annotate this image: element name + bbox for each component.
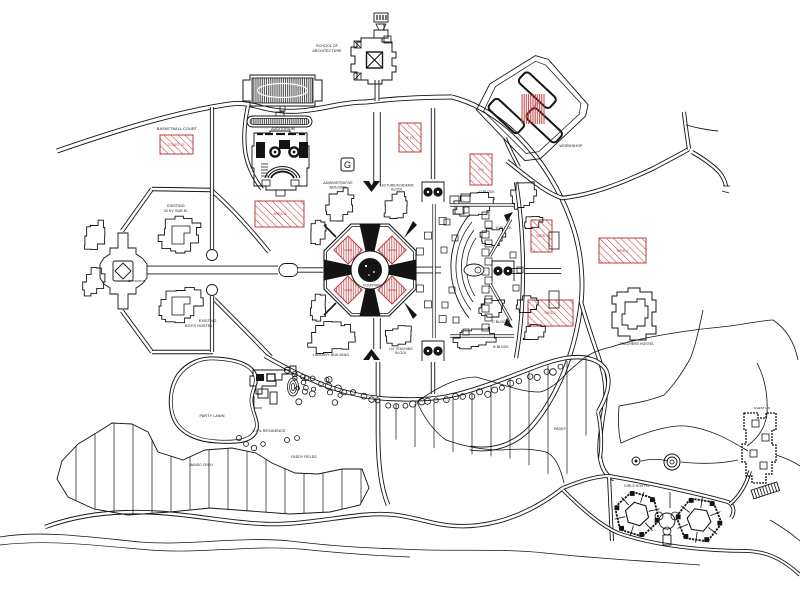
svg-text:YARD 2: YARD 2	[544, 311, 556, 315]
svg-text:WORKSHOP: WORKSHOP	[559, 144, 583, 148]
svg-text:LAWN: LAWN	[344, 288, 353, 292]
svg-text:GIRLS HOSTEL: GIRLS HOSTEL	[624, 484, 650, 488]
svg-text:BLOCK: BLOCK	[395, 351, 407, 355]
svg-text:V.C's RESIDENCE: V.C's RESIDENCE	[252, 429, 286, 433]
svg-text:COURT 12: COURT 12	[168, 143, 185, 147]
svg-text:PADDY: PADDY	[554, 427, 567, 431]
svg-text:LAWN: LAWN	[388, 248, 397, 252]
svg-text:C BLOCK: C BLOCK	[492, 320, 508, 324]
svg-text:SCHOOL OF: SCHOOL OF	[316, 44, 339, 48]
svg-text:LIBRARY BUILDING: LIBRARY BUILDING	[313, 353, 350, 357]
svg-text:AREA 11: AREA 11	[273, 212, 287, 216]
svg-text:YARD 4: YARD 4	[536, 234, 548, 238]
svg-text:BLOCK: BLOCK	[391, 188, 403, 192]
svg-text:PADDY FIELDS: PADDY FIELDS	[291, 455, 317, 459]
svg-text:FOUNTAIN: FOUNTAIN	[363, 284, 381, 288]
svg-text:EXISTING: EXISTING	[167, 204, 185, 208]
svg-text:LAWN: LAWN	[344, 248, 353, 252]
svg-text:MANGO ORCH: MANGO ORCH	[189, 463, 213, 467]
svg-text:GUEST HO: GUEST HO	[754, 406, 771, 410]
svg-text:G: G	[344, 160, 351, 170]
svg-text:TEACHERS HOSTEL: TEACHERS HOSTEL	[620, 342, 654, 346]
svg-text:33 KV SUB EL: 33 KV SUB EL	[164, 209, 189, 213]
svg-text:BASKETBALL COURT: BASKETBALL COURT	[157, 127, 198, 131]
svg-text:BOYS HOSTEL: BOYS HOSTEL	[185, 324, 213, 328]
svg-text:PARTY LAWN: PARTY LAWN	[199, 414, 224, 418]
svg-text:P 10: P 10	[407, 136, 414, 140]
svg-text:AUDITORIUM: AUDITORIUM	[271, 127, 295, 131]
svg-text:EXISTING: EXISTING	[199, 319, 217, 323]
svg-text:ENTRANCE: ENTRANCE	[128, 279, 145, 283]
svg-text:YARD 1: YARD 1	[616, 249, 628, 253]
svg-text:LAWN: LAWN	[388, 288, 397, 292]
svg-text:ADMINISTRATIVE: ADMINISTRATIVE	[323, 181, 353, 185]
svg-text:B BLOCK: B BLOCK	[493, 345, 509, 349]
svg-text:P 9: P 9	[478, 168, 483, 172]
svg-text:D BLOCK: D BLOCK	[479, 190, 495, 194]
svg-text:ARCHITECTURE: ARCHITECTURE	[312, 49, 342, 53]
